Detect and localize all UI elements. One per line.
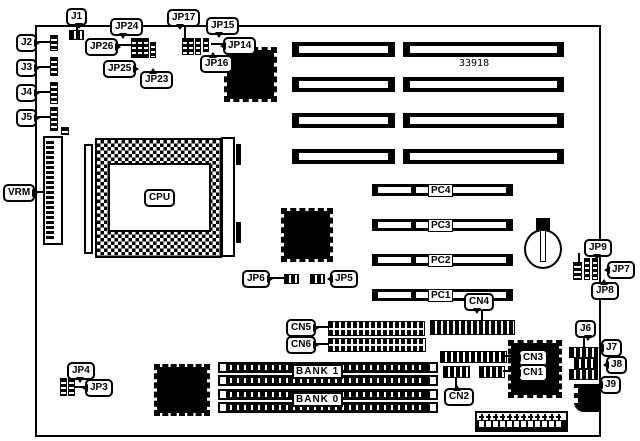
qfp-chip-bottom-left xyxy=(154,364,210,416)
cpu-socket-lever xyxy=(84,144,93,254)
power-socket xyxy=(514,421,519,427)
label-pc4: PC4 xyxy=(428,184,453,197)
isa-slot-short-1 xyxy=(292,42,395,57)
cpu-socket-clip xyxy=(236,144,241,165)
slot-key xyxy=(450,257,506,263)
cpu-socket-clip xyxy=(236,222,241,243)
isa-slot-long-4 xyxy=(403,149,564,164)
slot-key xyxy=(378,292,411,298)
simm-clip xyxy=(429,403,437,412)
isa-slot-short-2 xyxy=(292,77,395,92)
j4-pin-header xyxy=(50,82,58,104)
slot-key xyxy=(450,187,506,193)
label-jp24: JP24 xyxy=(110,18,143,36)
j8-connector xyxy=(569,369,598,380)
label-jp9: JP9 xyxy=(584,239,612,257)
label-j6: J6 xyxy=(575,320,596,338)
isa-slot-long-3 xyxy=(403,113,564,128)
label-j3: J3 xyxy=(16,59,37,77)
label-jp8: JP8 xyxy=(591,282,619,300)
j7-connector xyxy=(574,358,598,369)
label-j2: J2 xyxy=(16,34,37,52)
power-socket xyxy=(549,421,554,427)
jp6-jumper xyxy=(284,274,299,284)
leader-line xyxy=(578,253,580,263)
label-jp5: JP5 xyxy=(330,270,358,288)
cpu-socket-side-bar xyxy=(221,137,235,257)
jumper-block-jp17-group xyxy=(188,38,194,55)
slot-key xyxy=(416,257,428,263)
slot-key xyxy=(416,187,428,193)
cn5-connector xyxy=(328,321,425,336)
cn3-connector xyxy=(440,351,507,363)
battery-stem xyxy=(540,230,546,262)
isa-slot-short-4 xyxy=(292,149,395,164)
simm-clip xyxy=(219,403,227,412)
label-cn5: CN5 xyxy=(286,319,316,337)
label-jp14: JP14 xyxy=(223,37,256,55)
label-j4: J4 xyxy=(16,84,37,102)
power-socket xyxy=(500,421,505,427)
simm-clip xyxy=(219,376,227,385)
power-socket xyxy=(521,421,526,427)
power-socket xyxy=(493,421,498,427)
label-jp4: JP4 xyxy=(67,362,95,380)
label-jp25: JP25 xyxy=(103,60,136,78)
slot-key xyxy=(416,292,428,298)
label-j5: J5 xyxy=(16,109,37,127)
label-cn6: CN6 xyxy=(286,336,316,354)
jumper-block-jp4 xyxy=(60,378,67,396)
j2-pin-header xyxy=(50,35,58,51)
label-cn4: CN4 xyxy=(464,293,494,311)
label-cpu: CPU xyxy=(144,189,175,207)
qfp-chip-top xyxy=(224,47,277,102)
jumper-block-jp23 xyxy=(150,42,156,58)
simm-clip xyxy=(219,390,227,399)
simm-clip xyxy=(219,363,227,372)
label-jp6: JP6 xyxy=(242,270,270,288)
part-number: 33918 xyxy=(459,59,489,69)
label-cn2: CN2 xyxy=(444,388,474,406)
label-jp15: JP15 xyxy=(206,17,239,35)
jumper-block-jp9 xyxy=(573,262,582,280)
label-jp23: JP23 xyxy=(140,71,173,89)
jumper-block-jp7 xyxy=(584,258,590,280)
motherboard-diagram: 33918 PC4 PC3 PC2 PC1 CPU BANK 1 BANK 0 xyxy=(0,0,640,441)
label-jp26: JP26 xyxy=(85,38,118,56)
power-socket xyxy=(528,421,533,427)
label-pc2: PC2 xyxy=(428,254,453,267)
label-jp16: JP16 xyxy=(200,55,233,73)
cn6-connector xyxy=(328,338,426,352)
power-socket xyxy=(535,421,540,427)
jumper-block-jp24-group xyxy=(143,38,149,58)
simm-clip xyxy=(429,390,437,399)
jumper-block-jp15 xyxy=(195,38,201,55)
cn1-connector xyxy=(479,366,505,378)
slot-key xyxy=(378,187,411,193)
isa-slot-long-2 xyxy=(403,77,564,92)
label-jp7: JP7 xyxy=(607,261,635,279)
slot-key xyxy=(378,222,411,228)
label-j9: J9 xyxy=(600,376,621,394)
pin-header xyxy=(61,127,69,135)
power-socket xyxy=(542,421,547,427)
label-j1: J1 xyxy=(66,8,87,26)
label-jp3: JP3 xyxy=(85,379,113,397)
simm-clip xyxy=(429,363,437,372)
label-pc1: PC1 xyxy=(428,289,453,302)
j5-pin-header xyxy=(50,107,58,131)
j3-pin-header xyxy=(50,57,58,76)
power-socket-row xyxy=(477,420,566,430)
label-vrm: VRM xyxy=(3,184,35,202)
cpu-socket-cavity: CPU xyxy=(108,163,211,232)
power-socket xyxy=(507,421,512,427)
power-connector xyxy=(475,411,568,432)
slot-key xyxy=(416,222,428,228)
power-socket xyxy=(556,421,561,427)
simm-clip xyxy=(429,376,437,385)
label-j8: J8 xyxy=(606,356,627,374)
cn4-connector xyxy=(430,320,515,335)
isa-slot-short-3 xyxy=(292,113,395,128)
slot-key xyxy=(450,222,506,228)
power-socket xyxy=(479,421,484,427)
isa-slot-long-1 xyxy=(403,42,564,57)
qfp-chip-middle xyxy=(281,208,333,262)
label-bank0: BANK 0 xyxy=(292,392,343,407)
power-socket xyxy=(486,421,491,427)
vrm-connector xyxy=(43,136,63,245)
label-cn1: CN1 xyxy=(518,364,548,382)
jumper-block-jp3 xyxy=(68,378,75,396)
label-pc3: PC3 xyxy=(428,219,453,232)
slot-key xyxy=(378,257,411,263)
label-jp17: JP17 xyxy=(167,9,200,27)
label-j7: J7 xyxy=(601,339,622,357)
label-bank1: BANK 1 xyxy=(292,364,343,379)
